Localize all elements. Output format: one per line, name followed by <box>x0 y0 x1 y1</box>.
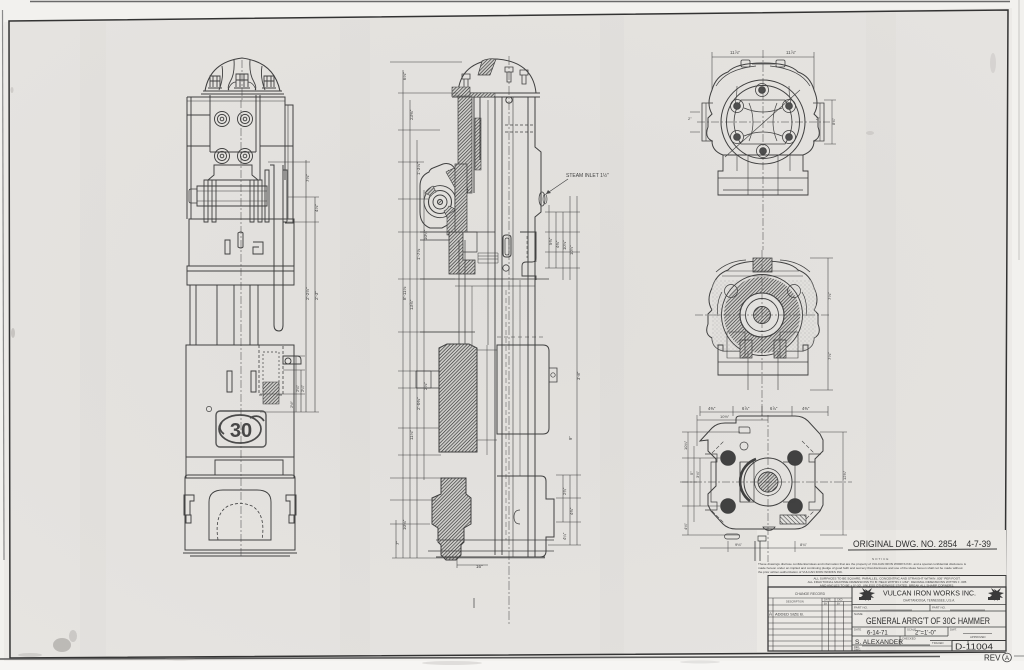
svg-text:2'-3": 2'-3" <box>314 291 319 300</box>
svg-text:10⅛": 10⅛" <box>402 519 407 530</box>
svg-text:2½": 2½" <box>289 400 294 408</box>
svg-text:PART NO.: PART NO. <box>932 606 946 610</box>
svg-text:4⅜": 4⅜" <box>708 406 716 411</box>
svg-text:2¾": 2¾" <box>562 487 567 495</box>
svg-text:CKD: CKD <box>837 598 843 602</box>
svg-text:CHECKED: CHECKED <box>902 637 916 641</box>
svg-text:9": 9" <box>568 436 573 440</box>
svg-text:8'-11⅛: 8'-11⅛ <box>402 286 407 300</box>
svg-text:REV: REV <box>984 654 1001 663</box>
svg-text:DESCRIPTION: DESCRIPTION <box>786 600 804 604</box>
svg-text:2¼": 2¼" <box>300 384 305 392</box>
svg-text:4⅛": 4⅛" <box>314 204 319 212</box>
svg-text:10¼": 10¼" <box>683 440 688 450</box>
svg-text:DATE: DATE <box>824 598 831 602</box>
svg-text:APPROVED: APPROVED <box>970 635 986 639</box>
svg-text:10½": 10½" <box>569 245 574 255</box>
svg-text:2": 2" <box>688 116 692 121</box>
svg-text:7⅛": 7⅛" <box>305 174 310 182</box>
svg-text:7": 7" <box>395 540 400 545</box>
svg-text:12⅜": 12⅜" <box>842 470 847 480</box>
svg-text:DWG.: DWG. <box>854 648 861 652</box>
svg-text:5": 5" <box>689 471 694 475</box>
svg-text:DATE: DATE <box>854 628 861 632</box>
svg-text:8⅜": 8⅜" <box>831 117 836 125</box>
svg-text:2⅛": 2⅛" <box>423 382 428 390</box>
svg-text:1'-3⅛": 1'-3⅛" <box>416 162 421 175</box>
svg-text:10¼": 10¼" <box>423 229 428 240</box>
svg-text:11⅞": 11⅞" <box>730 50 740 55</box>
svg-text:2'-0⅜": 2'-0⅜" <box>416 397 421 410</box>
svg-text:A: A <box>1005 656 1009 662</box>
svg-text:6⅞": 6⅞" <box>770 406 778 411</box>
svg-text:1'-7⅛: 1'-7⅛ <box>416 249 421 260</box>
svg-text:13⅞": 13⅞" <box>409 299 414 310</box>
svg-text:5⅜": 5⅜" <box>548 237 553 245</box>
svg-text:4¼": 4¼" <box>562 532 567 540</box>
svg-text:BY: BY <box>837 602 841 606</box>
svg-text:9⅛": 9⅛" <box>735 542 743 547</box>
svg-text:CHATTANOOGA, TENNESSEE, U.S.A.: CHATTANOOGA, TENNESSEE, U.S.A. <box>903 599 955 603</box>
svg-text:4⅜": 4⅜" <box>802 406 810 411</box>
svg-text:11⅛": 11⅛" <box>409 430 414 440</box>
svg-text:2": 2" <box>816 116 820 121</box>
svg-text:TRACED: TRACED <box>932 641 944 645</box>
svg-text:CHANGE RECORD: CHANGE RECORD <box>795 592 826 596</box>
svg-text:PART NO.: PART NO. <box>854 606 868 610</box>
svg-text:11⅞": 11⅞" <box>786 50 796 55</box>
svg-text:VULCAN IRON WORKS INC.: VULCAN IRON WORKS INC. <box>883 591 976 598</box>
svg-text:DWT.: DWT. <box>950 628 957 632</box>
svg-text:23⅜": 23⅜" <box>409 109 414 120</box>
svg-text:D-11004: D-11004 <box>955 642 993 652</box>
svg-text:4¾": 4¾" <box>683 522 688 530</box>
svg-text:the prior written authorizatio: the prior written authorization of VULCA… <box>758 570 843 574</box>
svg-text:7⅛": 7⅛" <box>827 292 832 300</box>
svg-text:4⅜": 4⅜" <box>555 240 560 248</box>
svg-text:8¾": 8¾" <box>800 542 808 547</box>
svg-text:7⅛": 7⅛" <box>827 352 832 360</box>
svg-text:2'-2½": 2'-2½" <box>304 287 310 300</box>
svg-text:4⅜": 4⅜" <box>569 507 574 515</box>
svg-text:3¾": 3¾" <box>695 470 700 478</box>
svg-text:10⅛": 10⅛" <box>562 240 567 250</box>
svg-text:BY: BY <box>824 602 828 606</box>
svg-text:10½": 10½" <box>720 414 730 419</box>
svg-text:NAME: NAME <box>854 612 863 616</box>
svg-text:ADDED SIZE B.: ADDED SIZE B. <box>775 612 804 617</box>
svg-text:3'-8": 3'-8" <box>576 371 581 380</box>
svg-text:6⅞": 6⅞" <box>742 406 750 411</box>
svg-text:6⅛": 6⅛" <box>402 72 407 80</box>
